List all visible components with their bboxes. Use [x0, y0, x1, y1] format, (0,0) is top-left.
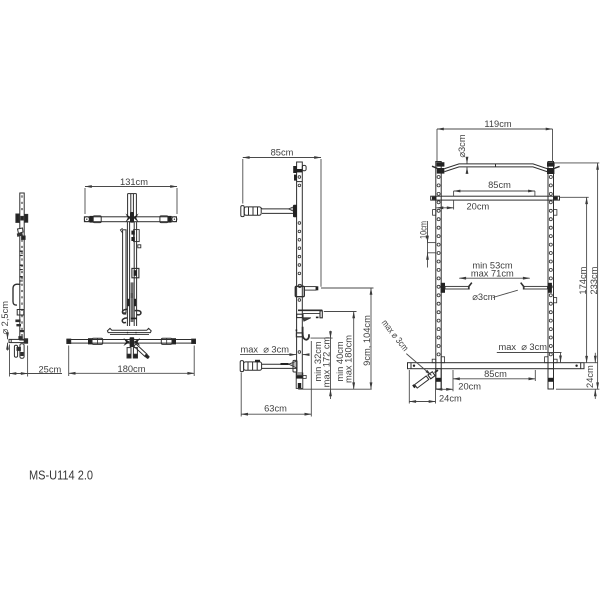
svg-text:85cm: 85cm [271, 148, 294, 158]
svg-text:24cm: 24cm [439, 394, 462, 404]
svg-text:63cm: 63cm [264, 404, 287, 414]
svg-text:233cm: 233cm [589, 266, 599, 294]
svg-text:MS-U114 2.0: MS-U114 2.0 [29, 468, 93, 483]
svg-text:85cm: 85cm [484, 369, 507, 379]
svg-text:max ⌀ 3cm: max ⌀ 3cm [241, 345, 290, 355]
svg-text:max 71cm: max 71cm [471, 268, 514, 278]
svg-text:⌀ 2,5cm: ⌀ 2,5cm [0, 301, 10, 335]
svg-text:max 172 cm: max 172 cm [322, 336, 332, 387]
svg-text:⌀3cm: ⌀3cm [457, 134, 467, 157]
svg-text:174cm: 174cm [578, 266, 588, 294]
svg-text:⌀3cm: ⌀3cm [472, 292, 495, 302]
svg-text:20cm: 20cm [458, 382, 481, 392]
svg-text:180cm: 180cm [118, 364, 146, 374]
svg-text:9cm, 104cm: 9cm, 104cm [362, 315, 372, 366]
svg-text:max ⌀ 3cm: max ⌀ 3cm [499, 342, 548, 352]
svg-text:85cm: 85cm [488, 180, 511, 190]
svg-text:max 180cm: max 180cm [343, 335, 353, 383]
svg-text:20cm: 20cm [467, 201, 490, 211]
svg-text:10cm: 10cm [418, 221, 428, 239]
svg-text:119cm: 119cm [484, 119, 511, 129]
svg-text:24cm: 24cm [585, 365, 595, 388]
svg-text:131cm: 131cm [120, 177, 148, 187]
svg-text:25cm: 25cm [39, 364, 62, 374]
